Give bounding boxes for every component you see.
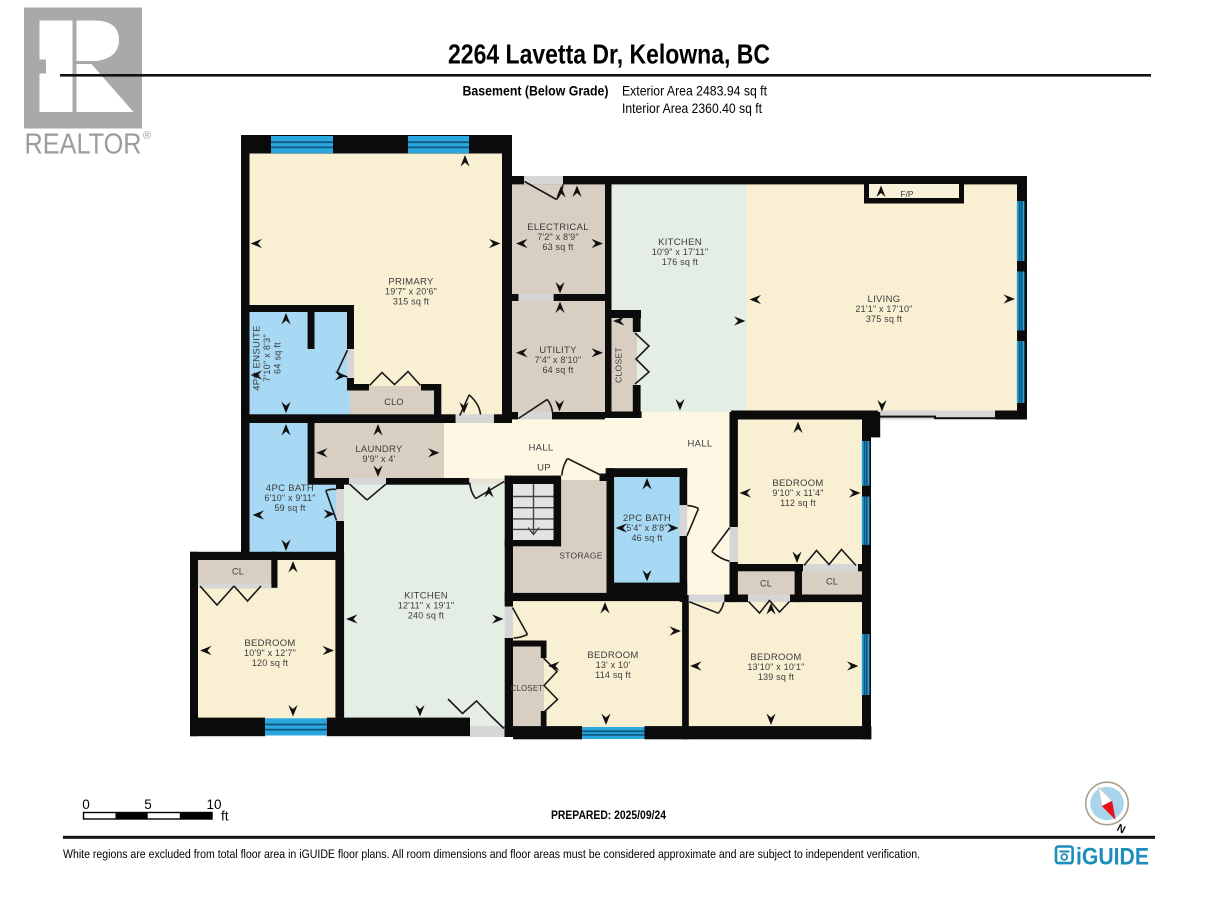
svg-text:iGUIDE: iGUIDE bbox=[1076, 844, 1149, 871]
svg-text:4PC ENSUITE: 4PC ENSUITE bbox=[252, 325, 263, 391]
svg-text:CL: CL bbox=[826, 577, 838, 587]
svg-text:REALTOR: REALTOR bbox=[25, 129, 142, 161]
svg-text:139 sq ft: 139 sq ft bbox=[758, 672, 795, 682]
svg-text:9'9" x 4': 9'9" x 4' bbox=[363, 454, 396, 464]
svg-text:0: 0 bbox=[82, 797, 90, 812]
svg-text:7'10" x 8'3": 7'10" x 8'3" bbox=[262, 334, 272, 382]
svg-text:Exterior Area 2483.94 sq ft: Exterior Area 2483.94 sq ft bbox=[622, 84, 767, 99]
svg-text:CL: CL bbox=[232, 567, 244, 577]
svg-text:375 sq ft: 375 sq ft bbox=[866, 314, 903, 324]
svg-text:UP: UP bbox=[537, 463, 551, 474]
svg-text:13'10" x 10'1": 13'10" x 10'1" bbox=[747, 662, 804, 672]
svg-text:Basement (Below Grade): Basement (Below Grade) bbox=[463, 84, 609, 99]
svg-text:®: ® bbox=[143, 130, 151, 142]
svg-text:HALL: HALL bbox=[688, 439, 713, 450]
svg-text:176 sq ft: 176 sq ft bbox=[662, 257, 699, 267]
svg-text:F/P: F/P bbox=[900, 189, 914, 199]
svg-text:HALL: HALL bbox=[529, 443, 554, 454]
svg-text:10'9" x 12'7": 10'9" x 12'7" bbox=[244, 648, 296, 658]
svg-text:N: N bbox=[1115, 822, 1128, 836]
svg-text:64 sq ft: 64 sq ft bbox=[542, 365, 573, 375]
svg-text:112 sq ft: 112 sq ft bbox=[780, 498, 816, 508]
svg-text:STORAGE: STORAGE bbox=[559, 551, 603, 561]
svg-text:7'4" x 8'10": 7'4" x 8'10" bbox=[535, 355, 582, 365]
svg-text:12'11" x 19'1": 12'11" x 19'1" bbox=[398, 601, 455, 611]
svg-text:CLOSET: CLOSET bbox=[511, 684, 543, 693]
svg-text:7'2" x 8'9": 7'2" x 8'9" bbox=[537, 232, 579, 242]
svg-text:PREPARED: 2025/09/24: PREPARED: 2025/09/24 bbox=[551, 808, 666, 822]
svg-text:64 sq ft: 64 sq ft bbox=[273, 342, 283, 374]
svg-text:63 sq ft: 63 sq ft bbox=[542, 242, 573, 252]
svg-text:19'7" x 20'6": 19'7" x 20'6" bbox=[385, 287, 437, 297]
svg-text:CLOSET: CLOSET bbox=[614, 347, 624, 383]
svg-text:5'4" x 8'8": 5'4" x 8'8" bbox=[626, 523, 668, 533]
svg-text:6'10" x 9'11": 6'10" x 9'11" bbox=[264, 493, 315, 503]
svg-text:46 sq ft: 46 sq ft bbox=[631, 533, 662, 543]
svg-text:10: 10 bbox=[206, 797, 221, 812]
svg-text:13' x 10': 13' x 10' bbox=[596, 660, 631, 670]
svg-text:120 sq ft: 120 sq ft bbox=[252, 658, 289, 668]
svg-text:114 sq ft: 114 sq ft bbox=[595, 670, 631, 680]
svg-text:5: 5 bbox=[144, 797, 152, 812]
svg-text:10'9" x 17'11": 10'9" x 17'11" bbox=[652, 247, 709, 257]
svg-text:White regions are excluded fro: White regions are excluded from total fl… bbox=[63, 847, 920, 861]
svg-text:21'1" x 17'10": 21'1" x 17'10" bbox=[855, 304, 912, 314]
svg-text:315 sq ft: 315 sq ft bbox=[393, 297, 430, 307]
svg-text:59 sq ft: 59 sq ft bbox=[274, 503, 305, 513]
svg-text:9'10" x 11'4": 9'10" x 11'4" bbox=[772, 488, 823, 498]
svg-text:240 sq ft: 240 sq ft bbox=[408, 611, 445, 621]
svg-text:CLO: CLO bbox=[384, 397, 403, 407]
svg-text:CL: CL bbox=[760, 579, 772, 589]
svg-text:2264 Lavetta Dr, Kelowna, BC: 2264 Lavetta Dr, Kelowna, BC bbox=[448, 39, 770, 70]
svg-text:Interior Area 2360.40 sq ft: Interior Area 2360.40 sq ft bbox=[622, 101, 762, 116]
svg-text:ft: ft bbox=[221, 809, 229, 824]
